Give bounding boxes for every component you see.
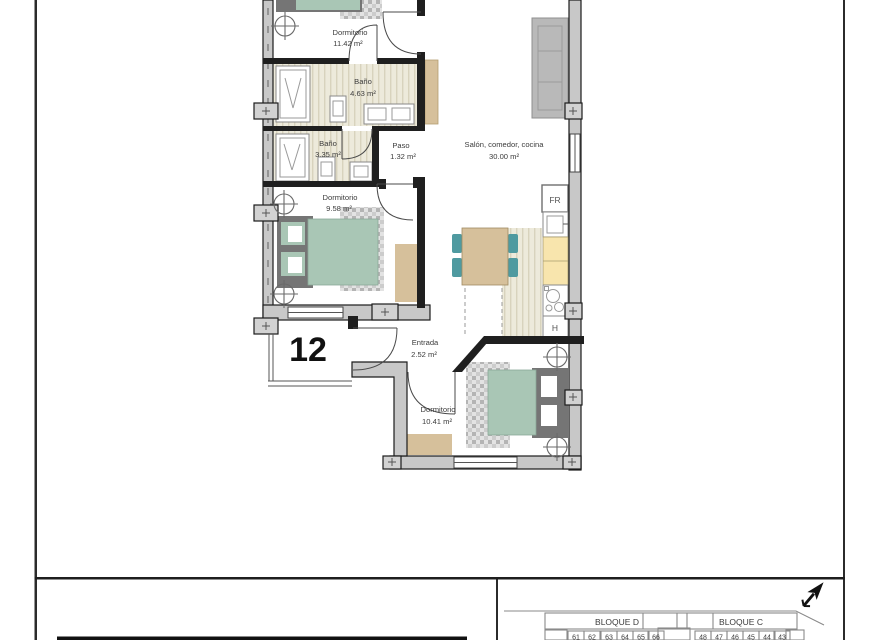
wall-bedroom1-jamb bbox=[417, 0, 425, 16]
kitchen-floor-boundary bbox=[465, 288, 502, 337]
junction-box bbox=[372, 304, 398, 320]
ceiling-light-icon bbox=[271, 12, 299, 40]
shower1 bbox=[276, 66, 310, 122]
toilet1 bbox=[330, 96, 346, 122]
ceiling-light-icon bbox=[543, 343, 571, 371]
bed2-mattress bbox=[308, 219, 378, 285]
unit-66: 66 bbox=[652, 635, 660, 640]
wall-bath1-north-left bbox=[263, 58, 349, 64]
wall-bedroom2-north bbox=[263, 181, 381, 187]
wall-entrada-step bbox=[352, 362, 407, 456]
label-paso-name: Paso bbox=[392, 141, 409, 150]
label-bano1-area: 4.63 m² bbox=[350, 89, 376, 98]
label-entrada-name: Entrada bbox=[412, 338, 439, 347]
label-bano1-name: Baño bbox=[354, 77, 372, 86]
junction-box bbox=[563, 456, 581, 469]
label-dormitorio1-name: Dormitorio bbox=[332, 28, 367, 37]
north-arrow-icon bbox=[799, 578, 828, 609]
bed3-pillow2 bbox=[541, 405, 557, 426]
chair-2 bbox=[452, 258, 462, 277]
wall-bath2-paso bbox=[372, 129, 379, 185]
unit-number: 12 bbox=[289, 331, 327, 369]
floor-plan-sheet: FR H bbox=[0, 0, 880, 640]
unit-48: 48 bbox=[699, 635, 707, 640]
unit-44: 44 bbox=[763, 635, 771, 640]
titleblock-divider bbox=[496, 580, 498, 640]
titleblock-separator bbox=[35, 577, 846, 580]
site-band-dividers bbox=[643, 613, 713, 629]
titleblock-bar bbox=[57, 637, 467, 640]
junction-box bbox=[565, 103, 582, 119]
unit-64: 64 bbox=[621, 635, 629, 640]
frame-right bbox=[843, 0, 845, 640]
wall-bath1-east bbox=[417, 52, 425, 130]
unit-62: 62 bbox=[588, 635, 596, 640]
basin2 bbox=[350, 162, 372, 181]
bed1-mattress bbox=[296, 0, 360, 10]
wall-bedroom3-north bbox=[484, 336, 584, 344]
sofa-body bbox=[532, 18, 568, 118]
bed3-pillow1 bbox=[541, 376, 557, 397]
shower2 bbox=[276, 134, 309, 181]
salon-wardrobe bbox=[425, 60, 438, 124]
junction-box bbox=[565, 390, 582, 405]
wall-bath2-north-left bbox=[263, 126, 342, 131]
label-dormitorio2-name: Dormitorio bbox=[322, 193, 357, 202]
chair-3 bbox=[508, 234, 518, 253]
label-bano2-name: Baño bbox=[319, 139, 337, 148]
dining-table bbox=[462, 228, 508, 285]
label-salon-area: 30.00 m² bbox=[489, 152, 519, 161]
bed2-pillow2-inner bbox=[288, 257, 302, 273]
site-units-row: 61 62 63 64 65 66 48 47 46 45 44 43 bbox=[545, 628, 804, 640]
unit-63: 63 bbox=[605, 635, 613, 640]
fridge-label: FR bbox=[549, 195, 560, 205]
wall-entry-jamb bbox=[348, 316, 358, 329]
chair-1 bbox=[452, 234, 462, 253]
site-key-plan: BLOQUE D BLOQUE C 61 62 63 64 65 66 48 4… bbox=[504, 578, 828, 640]
wall-bath2-north-right bbox=[372, 126, 425, 131]
bedroom2-desk bbox=[395, 244, 419, 302]
chair-4 bbox=[508, 258, 518, 277]
wall-bedroom2-east bbox=[417, 177, 425, 308]
bed-bedroom1 bbox=[276, 0, 362, 12]
bedroom3-dresser bbox=[402, 434, 452, 455]
label-paso-area: 1.32 m² bbox=[390, 152, 416, 161]
unit-65: 65 bbox=[637, 635, 645, 640]
junction-box bbox=[254, 318, 278, 334]
oven-label: H bbox=[552, 323, 558, 333]
label-bano2-area: 3.35 m² bbox=[315, 150, 341, 159]
bed2-pillow1-inner bbox=[288, 226, 302, 242]
junction-box bbox=[254, 103, 278, 119]
frame-left bbox=[35, 0, 38, 640]
bloque-d-label: BLOQUE D bbox=[595, 617, 639, 627]
bloque-c-label: BLOQUE C bbox=[719, 617, 763, 627]
label-salon-name: Salón, comedor, cocina bbox=[465, 140, 545, 149]
unit-43: 43 bbox=[778, 635, 786, 640]
junction-box bbox=[383, 456, 401, 469]
junction-box bbox=[565, 303, 582, 319]
door-bedroom1 bbox=[383, 12, 421, 54]
vanity1 bbox=[364, 104, 414, 124]
sofa bbox=[532, 18, 568, 118]
label-entrada-area: 2.52 m² bbox=[411, 350, 437, 359]
page-frame bbox=[35, 0, 846, 640]
label-dormitorio3-area: 10.41 m² bbox=[422, 417, 452, 426]
label-dormitorio3-name: Dormitorio bbox=[420, 405, 455, 414]
unit-46: 46 bbox=[731, 635, 739, 640]
unit-47: 47 bbox=[715, 635, 723, 640]
unit-45: 45 bbox=[747, 635, 755, 640]
kitchen-units: FR H bbox=[542, 185, 568, 337]
bed3-mattress bbox=[488, 370, 536, 435]
unit-61: 61 bbox=[572, 635, 580, 640]
label-dormitorio2-area: 9.58 m² bbox=[326, 204, 352, 213]
label-dormitorio1-area: 11.42 m² bbox=[333, 39, 363, 48]
